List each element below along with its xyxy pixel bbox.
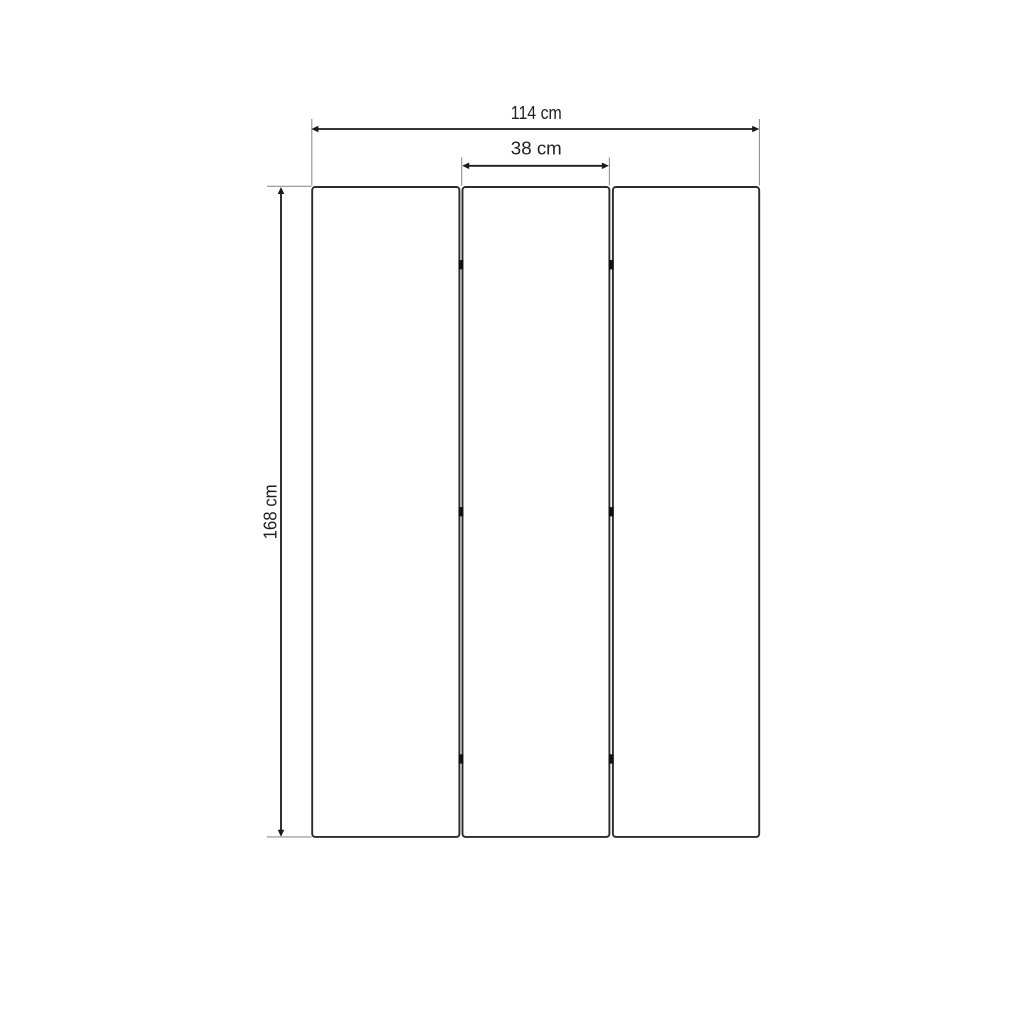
svg-text:114 cm: 114 cm (511, 103, 562, 123)
svg-text:38 cm: 38 cm (511, 139, 562, 159)
svg-text:168 cm: 168 cm (260, 484, 280, 539)
